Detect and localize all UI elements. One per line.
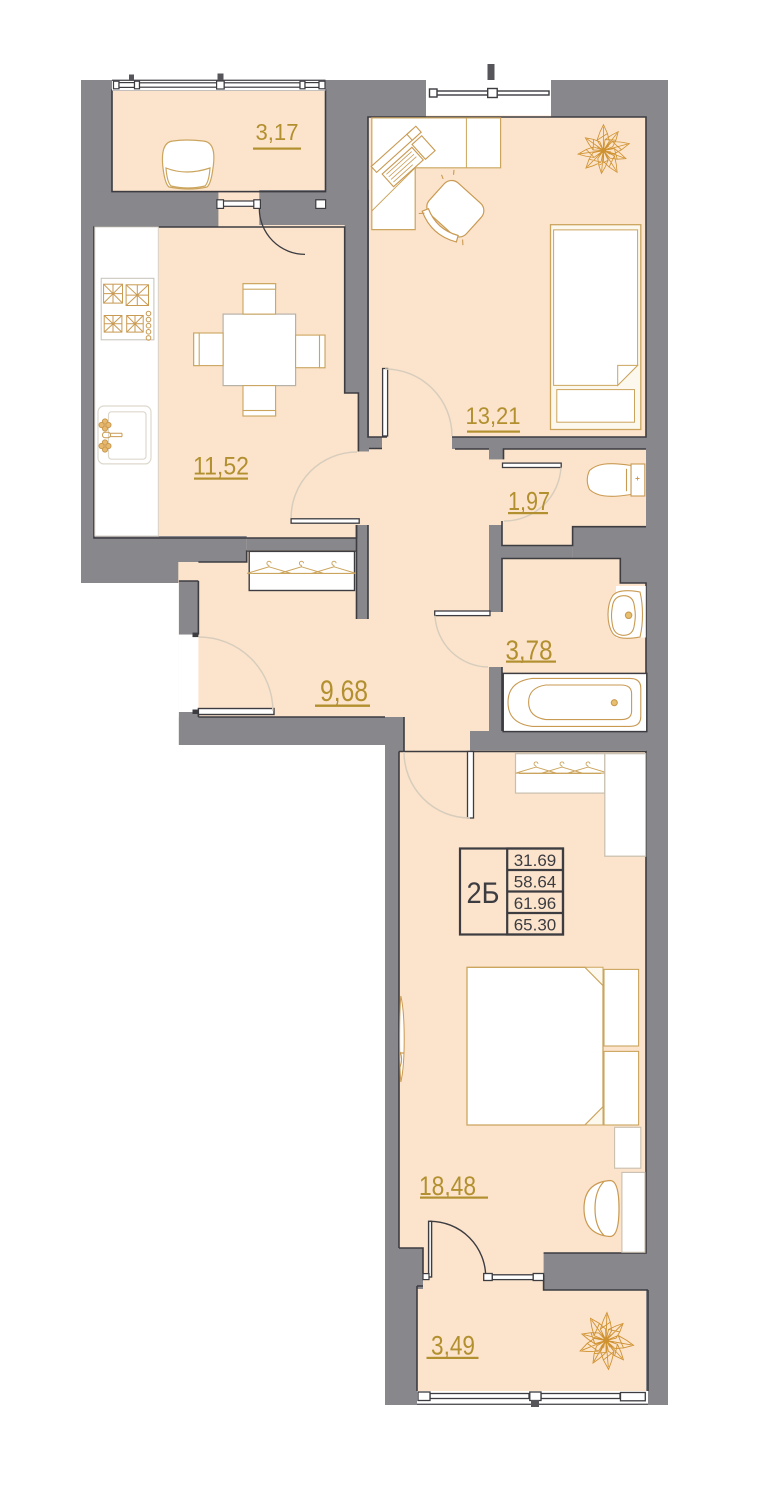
svg-text:31.69: 31.69	[514, 851, 557, 870]
svg-text:1,97: 1,97	[508, 486, 550, 516]
svg-text:3,49: 3,49	[431, 1331, 475, 1361]
svg-text:13,21: 13,21	[466, 403, 521, 430]
svg-text:11,52: 11,52	[193, 453, 249, 481]
svg-text:58.64: 58.64	[514, 873, 557, 892]
svg-text:61.96: 61.96	[514, 894, 557, 913]
svg-text:2Б: 2Б	[467, 877, 500, 910]
svg-text:9,68: 9,68	[320, 675, 368, 708]
svg-text:65.30: 65.30	[514, 916, 557, 935]
svg-text:3,17: 3,17	[256, 119, 299, 145]
